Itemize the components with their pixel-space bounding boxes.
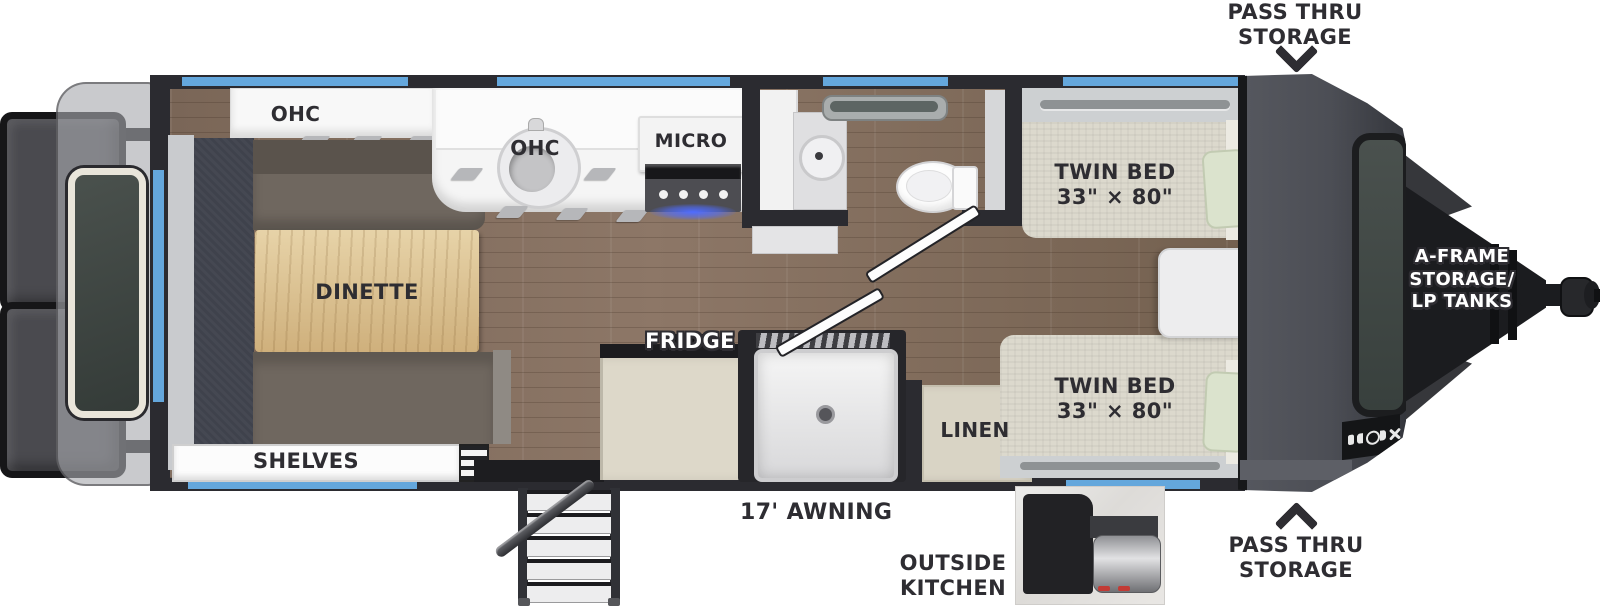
stove-knob bbox=[719, 190, 728, 199]
bath-wall-right bbox=[1005, 88, 1023, 224]
outside-kitchen-label: OUTSIDE KITCHEN bbox=[878, 551, 1028, 601]
outside-kitchen-box bbox=[1023, 494, 1093, 594]
step-rail-right bbox=[610, 488, 620, 600]
brand-icon bbox=[1348, 434, 1354, 445]
hitch-tip bbox=[1594, 289, 1600, 302]
bath-wall-left bbox=[742, 88, 760, 228]
floorplan-canvas: OHC OHC MICRO DINETTE SHELVES FRIDGE LIN… bbox=[0, 0, 1600, 608]
fridge-body bbox=[600, 358, 753, 480]
shower-drain bbox=[816, 405, 835, 424]
rear-window bbox=[68, 168, 146, 418]
dinette-bench-end-panel bbox=[493, 350, 511, 444]
linen-wall bbox=[906, 380, 922, 480]
bed-bottom-footrail-slot bbox=[1020, 462, 1220, 470]
entry-threshold bbox=[474, 460, 604, 482]
front-cap-skirt bbox=[1240, 460, 1352, 480]
rear-wall-face bbox=[168, 135, 194, 470]
grill-knob bbox=[1098, 586, 1110, 591]
awning-label: 17' AWNING bbox=[740, 500, 890, 526]
step-tread bbox=[527, 536, 611, 557]
stove-blue-glow bbox=[650, 204, 736, 220]
shelves-label: SHELVES bbox=[240, 449, 372, 474]
bath-wall-bottom-left bbox=[742, 210, 848, 226]
rear-window-band bbox=[153, 170, 164, 402]
grill-knob bbox=[1118, 586, 1130, 591]
ohc-kitchen-label: OHC bbox=[495, 137, 575, 161]
front-cap-edge bbox=[1238, 74, 1247, 492]
window-band-top-3 bbox=[823, 77, 948, 86]
kitchen-faucet bbox=[528, 118, 544, 131]
step-foot bbox=[518, 598, 530, 606]
toilet-tank bbox=[952, 166, 978, 210]
pass-thru-storage-bottom-label: PASS THRU STORAGE bbox=[1216, 533, 1376, 583]
micro-label: MICRO bbox=[640, 130, 742, 152]
outside-kitchen-grill bbox=[1093, 535, 1161, 593]
step-foot bbox=[608, 598, 620, 606]
bath-vanity-front bbox=[752, 226, 838, 254]
brand-icon bbox=[1357, 433, 1363, 444]
brand-icon-strip bbox=[1342, 414, 1400, 460]
twin-bed-top-label: TWIN BED 33" × 80" bbox=[1035, 160, 1195, 210]
step-tread bbox=[527, 582, 611, 603]
window-band-top-2 bbox=[497, 77, 730, 86]
ohc-rear-label: OHC bbox=[248, 103, 343, 127]
dinette-label: DINETTE bbox=[302, 280, 432, 305]
window-band-top-1 bbox=[182, 77, 408, 86]
front-cap bbox=[1238, 74, 1406, 492]
linen-label: LINEN bbox=[930, 419, 1020, 443]
stove-handle-bar bbox=[645, 164, 741, 179]
window-band-top-4 bbox=[1063, 77, 1240, 86]
stove-knob bbox=[699, 190, 708, 199]
bed-top-headrail-slot bbox=[1040, 100, 1230, 109]
stove-knob bbox=[679, 190, 688, 199]
bath-window-glass bbox=[830, 101, 938, 112]
bath-wall-face-right bbox=[985, 90, 1007, 212]
fridge-label: FRIDGE bbox=[620, 329, 760, 354]
a-frame-storage-label: A-FRAME STORAGE/ LP TANKS bbox=[1397, 246, 1527, 314]
toilet-seat bbox=[906, 170, 952, 202]
brand-icon bbox=[1380, 430, 1386, 441]
brand-icon bbox=[1366, 430, 1380, 446]
stove-knob bbox=[659, 190, 668, 199]
bath-sink-drain bbox=[815, 152, 823, 160]
twin-bed-bottom-label: TWIN BED 33" × 80" bbox=[1035, 374, 1195, 424]
wardrobe bbox=[194, 138, 254, 450]
step-tread bbox=[527, 559, 611, 580]
dinette-bench-bottom bbox=[253, 352, 493, 444]
nightstand bbox=[1158, 248, 1250, 338]
